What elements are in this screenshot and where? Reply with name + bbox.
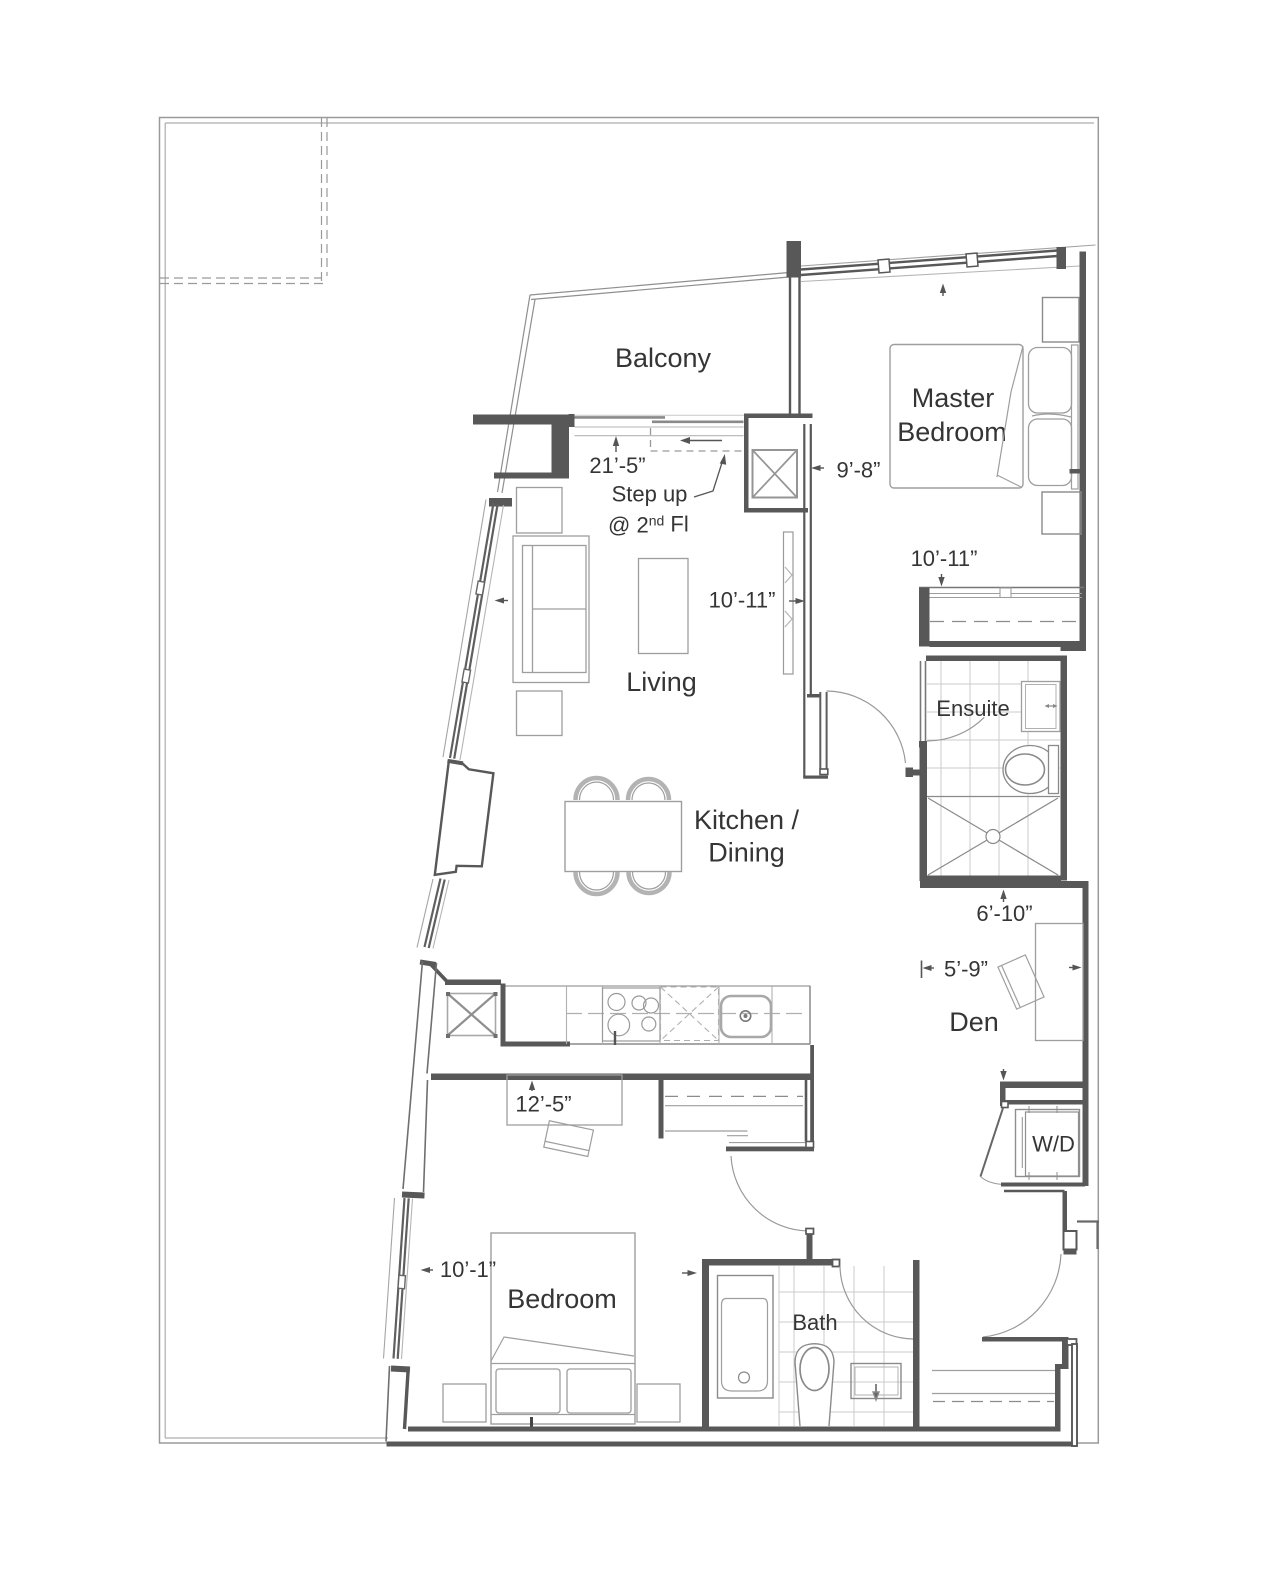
svg-text:Bath: Bath: [792, 1310, 837, 1335]
svg-text:Master: Master: [912, 383, 995, 413]
svg-text:10’-1”: 10’-1”: [440, 1257, 496, 1282]
svg-text:Balcony: Balcony: [615, 343, 712, 373]
svg-text:W/D: W/D: [1032, 1132, 1075, 1157]
svg-text:Bedroom: Bedroom: [507, 1284, 617, 1314]
svg-text:@ 2nd Fl: @ 2nd Fl: [608, 512, 689, 538]
svg-text:10’-11”: 10’-11”: [709, 588, 776, 613]
svg-text:9’-8”: 9’-8”: [836, 458, 880, 483]
svg-text:Kitchen /: Kitchen /: [694, 805, 800, 835]
svg-text:Step up: Step up: [612, 482, 688, 507]
svg-text:10’-11”: 10’-11”: [911, 546, 978, 571]
svg-text:5’-9”: 5’-9”: [944, 957, 988, 982]
svg-text:Den: Den: [949, 1007, 999, 1037]
svg-text:Living: Living: [626, 667, 697, 697]
svg-text:12’-5”: 12’-5”: [515, 1092, 571, 1117]
svg-text:6’-10”: 6’-10”: [976, 901, 1032, 926]
svg-text:Ensuite: Ensuite: [936, 696, 1009, 721]
svg-text:Bedroom: Bedroom: [897, 417, 1007, 447]
svg-text:21’-5”: 21’-5”: [589, 453, 645, 478]
svg-text:Dining: Dining: [708, 838, 785, 868]
